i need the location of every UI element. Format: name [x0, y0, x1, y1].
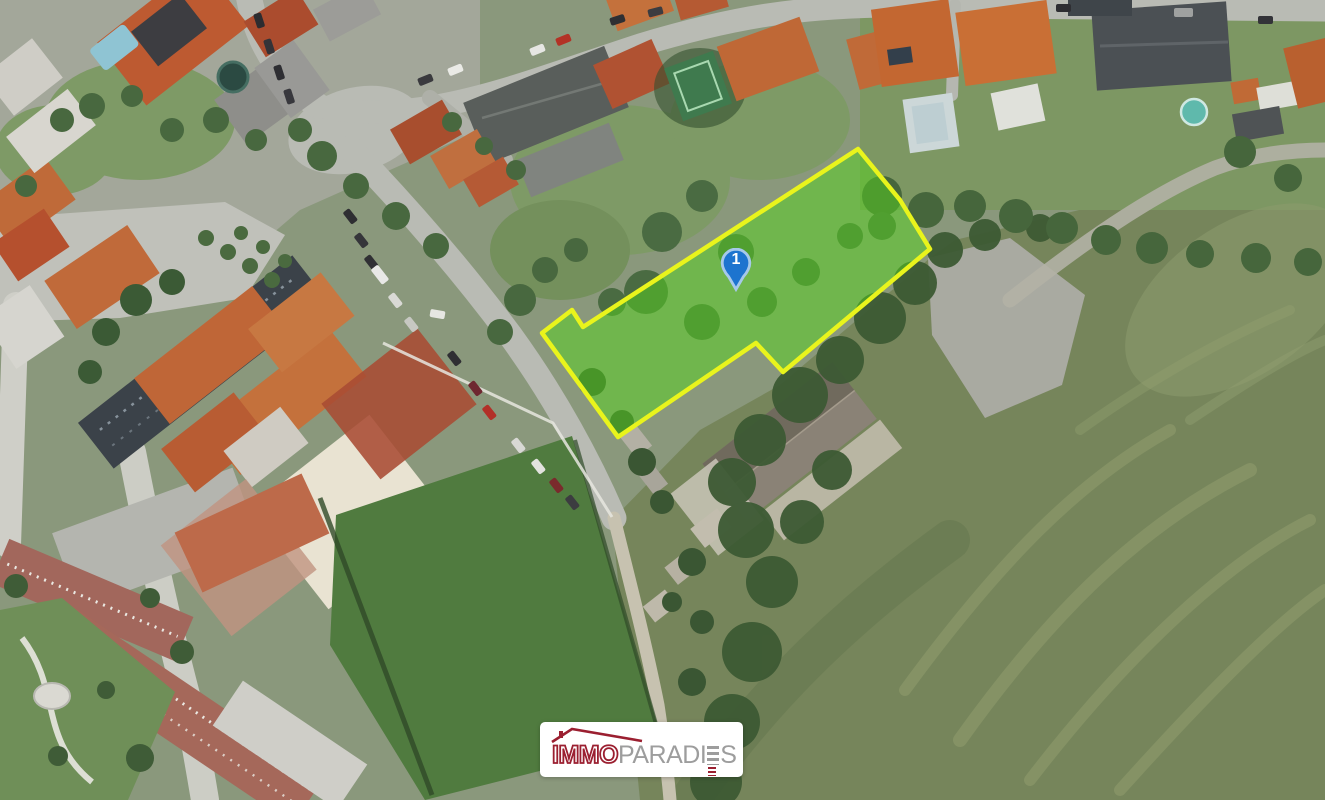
map-marker-1[interactable]: 1 — [719, 246, 753, 293]
roof-icon — [550, 726, 646, 744]
satellite-imagery — [0, 0, 1325, 800]
logo-paradi-text: PARADI — [618, 743, 706, 768]
stylized-e-icon — [707, 746, 719, 765]
marker-number: 1 — [719, 252, 753, 268]
map-canvas[interactable]: 1 IMMOPARADIS — [0, 0, 1325, 800]
logo-s-text: S — [720, 743, 736, 768]
logo-immo-text: IMMO — [552, 743, 618, 768]
watermark-logo: IMMOPARADIS — [540, 722, 743, 777]
